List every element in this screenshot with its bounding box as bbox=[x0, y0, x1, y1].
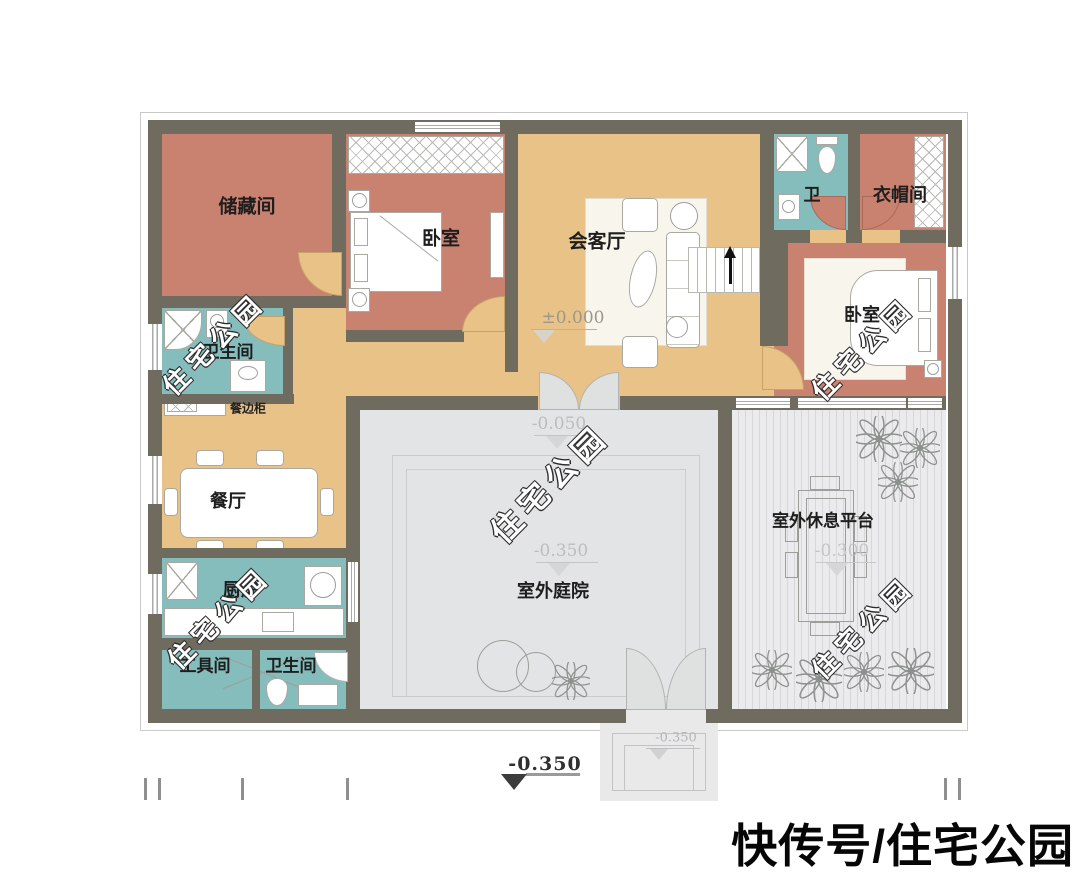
room-label-courtyard: 室外庭院 bbox=[517, 577, 589, 603]
elevation-living: ±0.000 bbox=[542, 308, 605, 328]
side-table-icon bbox=[670, 202, 698, 230]
wall-bedroom1-south bbox=[346, 330, 464, 342]
wall-top bbox=[148, 120, 962, 134]
tv-cabinet-icon bbox=[490, 212, 504, 278]
wall-courtyard-east bbox=[718, 410, 732, 709]
sink-icon bbox=[298, 684, 338, 706]
palm-plant-icon bbox=[878, 462, 918, 502]
window-icon bbox=[948, 247, 962, 299]
room-label-platform: 室外休息平台 bbox=[772, 507, 874, 532]
wall-bath2-east bbox=[848, 134, 860, 230]
wall-bedroom2-west bbox=[774, 243, 788, 346]
chair-icon bbox=[164, 488, 178, 516]
elevation-platform: -0.300 bbox=[815, 541, 869, 561]
window-icon bbox=[148, 574, 162, 614]
chair-icon bbox=[256, 450, 284, 466]
wall-bath2-south-b bbox=[846, 230, 862, 243]
chair-icon bbox=[320, 488, 334, 516]
elevation-triangle-icon bbox=[826, 563, 848, 576]
dimension-tick bbox=[958, 778, 961, 800]
window-icon bbox=[798, 398, 906, 408]
kitchen-sink-bowl-icon bbox=[310, 572, 336, 598]
wall-living-west bbox=[505, 134, 518, 372]
fridge-icon bbox=[166, 562, 198, 600]
armchair-icon bbox=[622, 336, 658, 368]
wall-right bbox=[948, 134, 962, 723]
outdoor-chair-icon bbox=[785, 552, 798, 578]
palm-plant-icon bbox=[888, 648, 934, 694]
side-table-icon bbox=[666, 316, 688, 338]
dining-table-icon bbox=[180, 468, 318, 538]
window-icon bbox=[415, 122, 500, 132]
wall-dining-kitchen bbox=[162, 548, 346, 558]
stair-up-arrow-icon bbox=[724, 246, 736, 258]
wall-living-east bbox=[760, 134, 774, 346]
armchair-icon bbox=[622, 198, 658, 232]
room-label-sideboard: 餐边柜 bbox=[230, 400, 266, 417]
pillow-icon bbox=[918, 278, 931, 312]
elevation-site: -0.350 bbox=[508, 753, 581, 775]
vanity-bowl-icon bbox=[238, 366, 258, 380]
room-label-bedroom1: 卧室 bbox=[422, 224, 460, 251]
window-icon bbox=[908, 398, 942, 408]
wall-courtyard-west bbox=[346, 410, 360, 709]
room-label-living: 会客厅 bbox=[568, 227, 625, 254]
room-label-storage: 储藏间 bbox=[218, 192, 275, 219]
wall-bottom bbox=[148, 709, 962, 723]
wall-left bbox=[148, 134, 162, 723]
elevation-triangle-icon bbox=[548, 563, 570, 576]
window-icon bbox=[148, 324, 162, 370]
sink-bowl-icon bbox=[782, 200, 795, 213]
window-icon bbox=[348, 562, 358, 622]
elevation-line bbox=[526, 773, 580, 776]
elevation-porch: -0.350 bbox=[655, 731, 697, 746]
palm-plant-icon bbox=[552, 662, 590, 700]
elevation-triangle-icon bbox=[533, 330, 555, 343]
stair-arrow-stem bbox=[729, 256, 732, 284]
wall-tool-bath3 bbox=[252, 650, 260, 709]
dimension-tick bbox=[944, 778, 947, 800]
elevation-court-main: -0.350 bbox=[534, 541, 588, 561]
wall-living-south-a bbox=[346, 396, 538, 410]
window-icon bbox=[148, 456, 162, 504]
lamp-icon bbox=[352, 292, 367, 307]
pillow-icon bbox=[918, 318, 931, 352]
wall-bath2-south-a bbox=[774, 230, 810, 243]
tree-icon bbox=[516, 652, 556, 692]
floor-plan-canvas: 储藏间 卧室 会客厅 卫 衣帽间 卧室 卫生间 餐边柜 餐厅 厨房 工具间 卫生… bbox=[0, 0, 1078, 880]
gate-opening bbox=[626, 709, 706, 723]
window-icon bbox=[736, 398, 790, 408]
dimension-tick bbox=[241, 778, 244, 800]
lamp-icon bbox=[352, 193, 367, 208]
chair-icon bbox=[196, 450, 224, 466]
outdoor-chair-icon bbox=[810, 476, 840, 490]
stove-icon bbox=[262, 612, 294, 632]
shower-icon bbox=[776, 136, 808, 172]
elevation-triangle-icon bbox=[501, 774, 527, 790]
lamp-icon bbox=[927, 363, 939, 375]
palm-plant-icon bbox=[752, 650, 792, 690]
room-label-bath2: 卫 bbox=[804, 181, 821, 206]
dimension-tick bbox=[158, 778, 161, 800]
dimension-tick bbox=[346, 778, 349, 800]
elevation-triangle-icon bbox=[650, 749, 668, 760]
pillow-icon bbox=[354, 254, 368, 282]
palm-plant-icon bbox=[856, 416, 902, 462]
wall-cloak-south bbox=[900, 230, 946, 243]
toilet-tank-icon bbox=[816, 136, 838, 145]
wardrobe-icon bbox=[348, 136, 504, 174]
branding-text: 快传号/住宅公园 bbox=[731, 814, 1074, 878]
room-label-cloakroom: 衣帽间 bbox=[873, 181, 927, 207]
dimension-tick bbox=[144, 778, 147, 800]
pillow-icon bbox=[354, 218, 368, 246]
room-label-dining: 餐厅 bbox=[210, 487, 246, 513]
room-label-bath3: 卫生间 bbox=[266, 652, 317, 677]
